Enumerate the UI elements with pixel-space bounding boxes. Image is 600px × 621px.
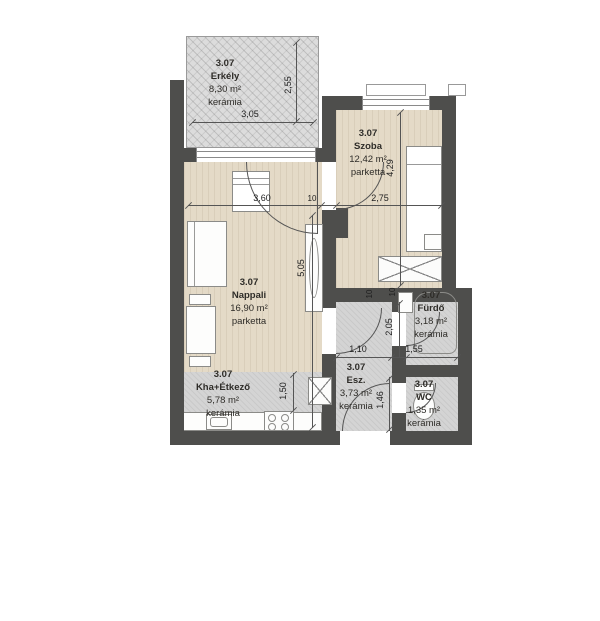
dim-balcony-depth: 2,55 xyxy=(283,65,295,105)
wall-terrace-stub-left xyxy=(184,148,196,162)
dim-wall-thickness: 10 xyxy=(365,274,377,314)
burner xyxy=(281,423,289,431)
sofa-back-line xyxy=(194,222,195,286)
room-number: 3.07 xyxy=(311,361,401,374)
room-label-bathroom: 3.07 Fürdő 3,18 m² kerámia xyxy=(386,289,476,341)
room-name: Erkély xyxy=(180,70,270,83)
room-name: Fürdő xyxy=(386,302,476,315)
room-label-living: 3.07 Nappali 16,90 m² parketta xyxy=(204,276,294,328)
room-area: 1,35 m² xyxy=(379,404,469,417)
dim-bedroom-width: 2,75 xyxy=(362,193,398,203)
wall-bedroom-left-lower xyxy=(322,210,336,302)
dim-living-length: 5,05 xyxy=(296,248,308,288)
dim-line xyxy=(293,373,294,411)
window-sill xyxy=(366,84,426,96)
wall-bottom-left xyxy=(170,431,340,445)
stove xyxy=(264,411,294,431)
wall-right-upper xyxy=(442,96,456,288)
burner xyxy=(268,414,276,422)
tv-unit xyxy=(336,208,348,238)
room-number: 3.07 xyxy=(323,127,413,140)
wall-hall-left-stub xyxy=(322,302,336,308)
burner xyxy=(268,423,276,431)
nightstand xyxy=(424,234,442,250)
room-number: 3.07 xyxy=(386,289,476,302)
dim-hall-width: 1,10 xyxy=(340,344,376,354)
room-name: Nappali xyxy=(204,289,294,302)
room-floor: kerámia xyxy=(379,417,469,430)
dim-line xyxy=(336,357,458,358)
room-area: 16,90 m² xyxy=(204,302,294,315)
chair xyxy=(189,356,211,367)
room-name: Kha+Étkező xyxy=(178,381,268,394)
room-number: 3.07 xyxy=(379,378,469,391)
floor-plan: 3,05 2,55 3,60 10 2,75 5,05 4,29 1,10 1,… xyxy=(0,0,600,621)
dim-wall-thickness: 10 xyxy=(303,194,321,203)
balcony-glass-door xyxy=(196,148,316,162)
room-floor: parketta xyxy=(204,315,294,328)
room-label-balcony: 3.07 Erkély 8,30 m² kerámia xyxy=(180,57,270,109)
room-area: 8,30 m² xyxy=(180,83,270,96)
room-number: 3.07 xyxy=(180,57,270,70)
room-floor: kerámia xyxy=(180,96,270,109)
room-floor: parketta xyxy=(323,166,413,179)
entrance-opening xyxy=(340,431,390,445)
bedroom-window xyxy=(362,96,430,110)
room-area: 3,18 m² xyxy=(386,315,476,328)
room-area: 5,78 m² xyxy=(178,394,268,407)
window-sill xyxy=(448,84,466,96)
dim-line xyxy=(296,42,297,122)
dim-line xyxy=(188,205,442,206)
room-label-bedroom: 3.07 Szoba 12,42 m² parketta xyxy=(323,127,413,179)
burner xyxy=(281,414,289,422)
dim-kitchen-depth: 1,50 xyxy=(278,371,290,411)
cabinet-mirror xyxy=(309,238,319,298)
room-number: 3.07 xyxy=(204,276,294,289)
room-label-wc: 3.07 WC 1,35 m² kerámia xyxy=(379,378,469,430)
dim-living-width: 3,60 xyxy=(244,193,280,203)
room-floor: kerámia xyxy=(386,328,476,341)
room-floor: kerámia xyxy=(178,407,268,420)
wall-bath-wc xyxy=(392,365,472,377)
room-name: Szoba xyxy=(323,140,413,153)
room-area: 12,42 m² xyxy=(323,153,413,166)
room-number: 3.07 xyxy=(178,368,268,381)
room-name: WC xyxy=(379,391,469,404)
dim-bath-width: 1,55 xyxy=(396,344,432,354)
wall-bedroom-top-right xyxy=(430,96,456,110)
room-label-kitchen: 3.07 Kha+Étkező 5,78 m² kerámia xyxy=(178,368,268,420)
dim-balcony-width: 3,05 xyxy=(232,109,268,119)
